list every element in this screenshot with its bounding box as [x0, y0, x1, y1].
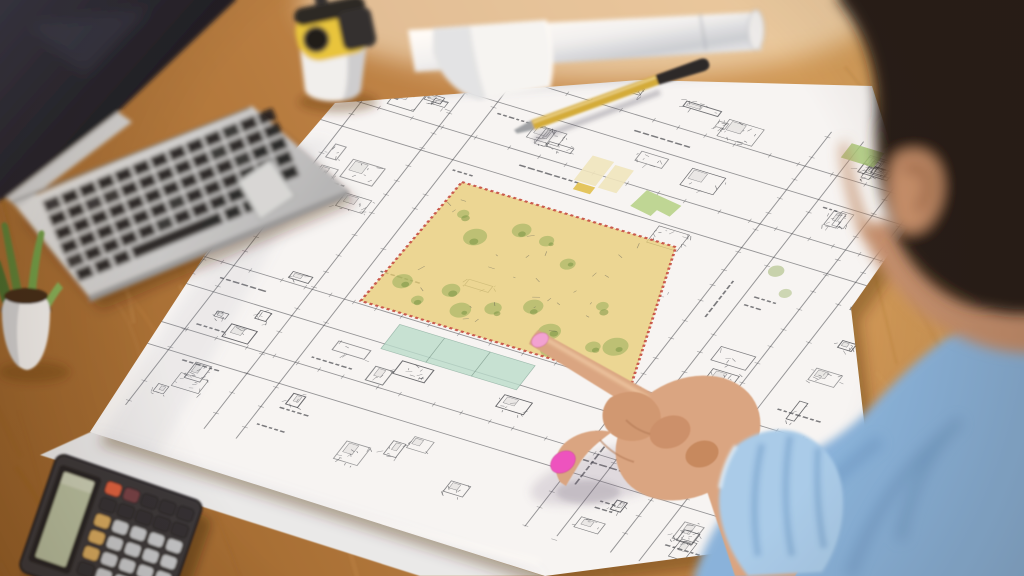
warm-tint: [0, 0, 1024, 576]
photo-architect-blueprint-desk: Architect's hand with pink nails pointin…: [0, 0, 1024, 576]
scene-photo: Architect's hand with pink nails pointin…: [0, 0, 1024, 576]
